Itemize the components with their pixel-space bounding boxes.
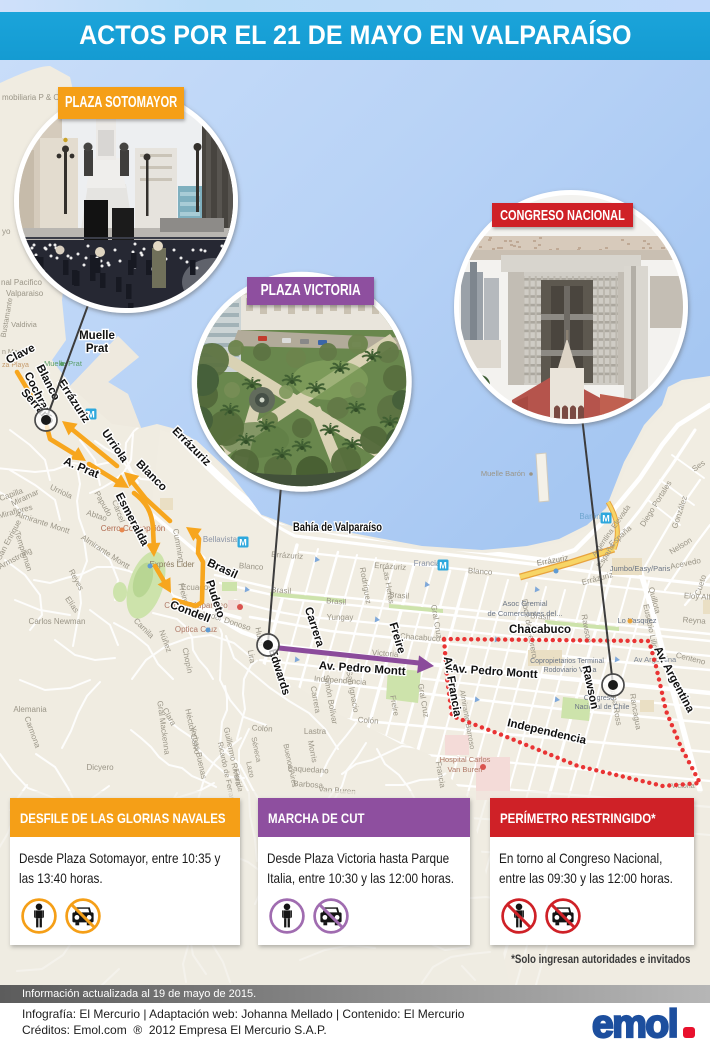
svg-text:Valdivia: Valdivia [11,320,38,329]
svg-text:Muelle: Muelle [79,330,115,342]
svg-text:Blanco: Blanco [239,561,265,572]
svg-text:Francia: Francia [414,559,441,568]
svg-text:Van Buren: Van Buren [448,765,483,774]
svg-text:mobiliaria P & C: mobiliaria P & C [2,93,59,102]
svg-text:Copropietarios Terminal: Copropietarios Terminal [530,658,604,665]
svg-text:M: M [439,560,447,570]
svg-text:Alemania: Alemania [13,705,47,714]
svg-text:Lastra: Lastra [304,727,327,736]
svg-text:Jumbo/Easy/Paris: Jumbo/Easy/Paris [610,564,671,573]
svg-text:Chacabuco: Chacabuco [509,624,571,636]
svg-text:Valparaiso: Valparaiso [6,289,44,298]
svg-text:Blanco: Blanco [468,566,494,577]
svg-text:Muelle Barón: Muelle Barón [481,469,525,478]
svg-text:Carlos Newman: Carlos Newman [29,617,86,626]
svg-text:de Comerciantes del...: de Comerciantes del... [487,609,562,618]
svg-text:Colón: Colón [357,715,378,725]
svg-text:yo: yo [2,227,11,236]
svg-text:Brasil: Brasil [326,596,347,606]
svg-text:Hospital Carlos: Hospital Carlos [440,755,491,764]
svg-text:Nacional de Chile: Nacional de Chile [575,704,630,711]
svg-text:Optica Cruz: Optica Cruz [175,625,217,634]
svg-text:Bahía de Valparaíso: Bahía de Valparaíso [293,522,382,534]
svg-text:Barón: Barón [579,512,600,521]
svg-text:Prat: Prat [86,343,109,355]
svg-text:emol: emol [592,1003,677,1045]
svg-text:Colón: Colón [251,723,272,733]
svg-text:Lo Vasquez: Lo Vasquez [617,616,656,625]
svg-text:Yungay: Yungay [327,613,354,622]
svg-text:Asoc Gremial: Asoc Gremial [502,599,547,608]
svg-text:Reyna: Reyna [682,615,706,626]
svg-text:Dicyero: Dicyero [86,763,114,772]
svg-text:M: M [602,513,610,523]
svg-text:Bellavista: Bellavista [203,535,238,544]
svg-text:nal Pacifico: nal Pacifico [1,278,42,287]
svg-text:M: M [239,537,247,547]
svg-text:Brasil: Brasil [271,585,292,595]
